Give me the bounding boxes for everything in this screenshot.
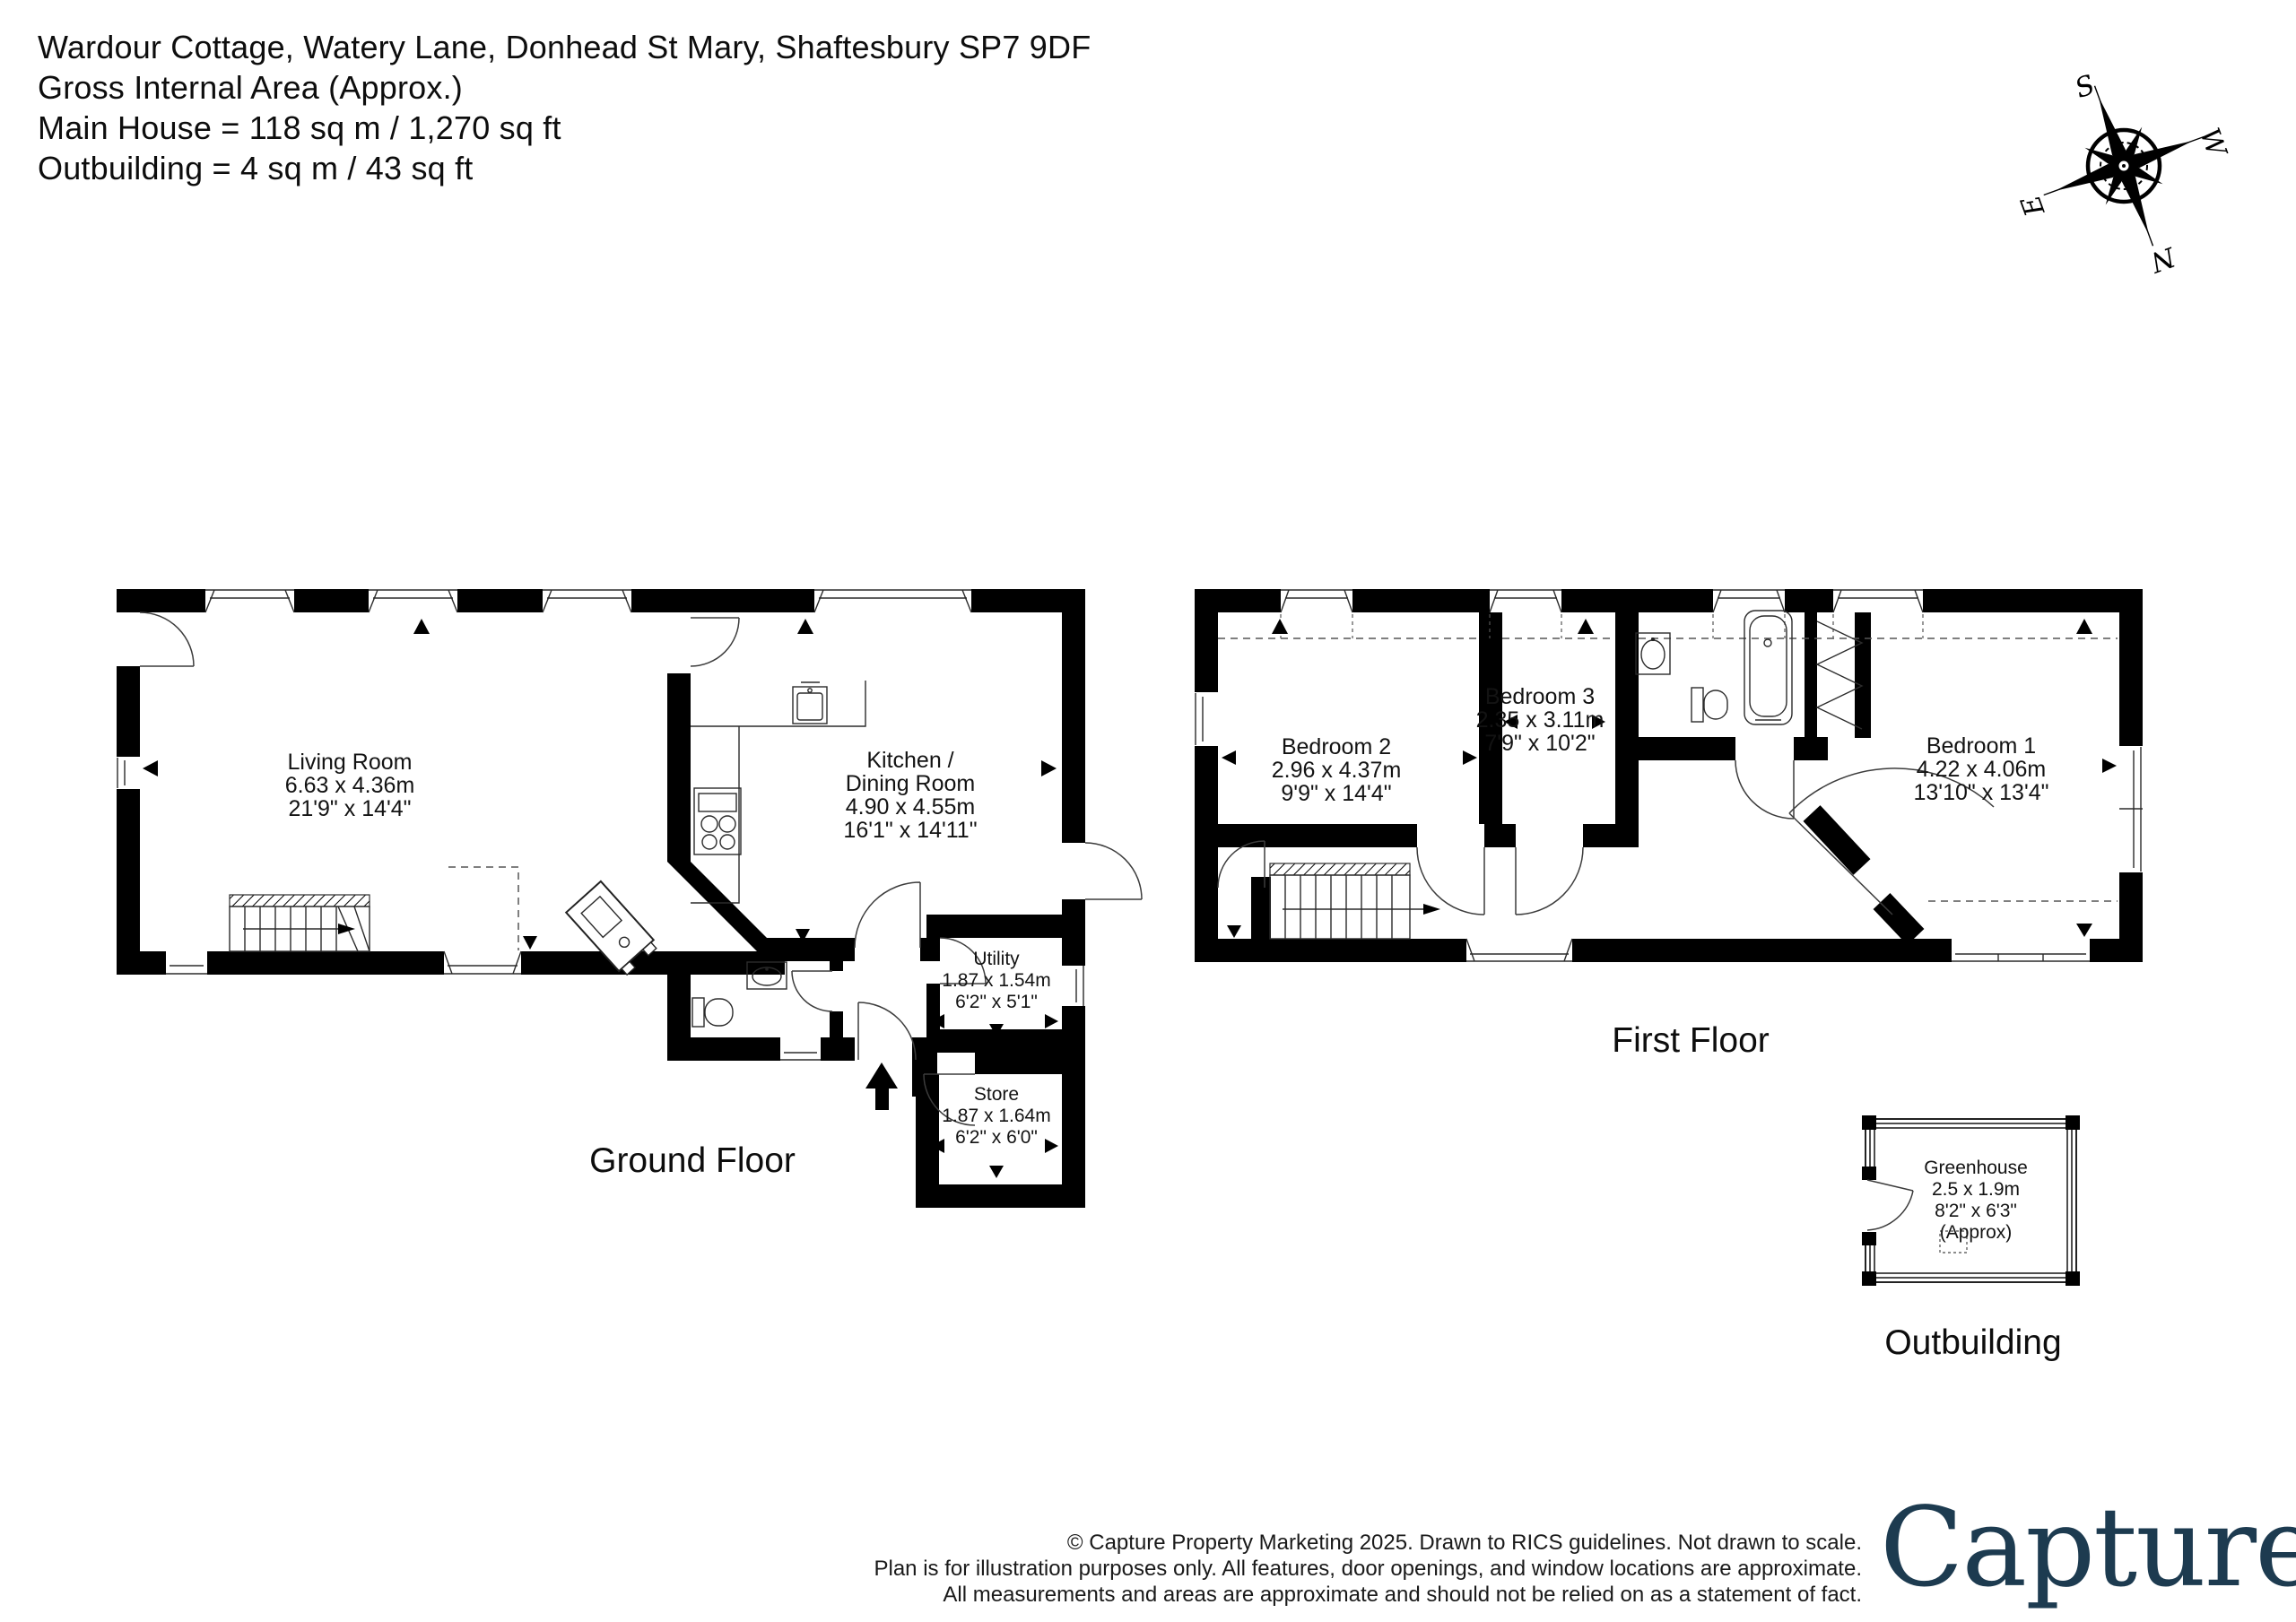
bathroom-sink [1636, 633, 1670, 674]
bedroom1-label: Bedroom 1 4.22 x 4.06m 13'10" x 13'4" [1913, 734, 2048, 804]
capture-logo: Capture. [1880, 1490, 2296, 1605]
compass-east-label: E [2015, 191, 2052, 221]
compass-west-label: W [2193, 124, 2232, 162]
compass-star [2014, 56, 2233, 275]
bathroom-toilet [1692, 688, 1727, 722]
illustration-line: Plan is for illustration purposes only. … [874, 1556, 1862, 1582]
cooker [694, 788, 741, 854]
gross-internal-area-label: Gross Internal Area (Approx.) [38, 67, 1091, 108]
first-staircase [1270, 863, 1440, 939]
entrance-arrow [865, 1063, 898, 1110]
ground-staircase [230, 867, 518, 951]
wc-toilet [692, 998, 733, 1027]
outbuilding-title: Outbuilding [1884, 1323, 2061, 1363]
first-floor-title: First Floor [1612, 1021, 1770, 1061]
property-address: Wardour Cottage, Watery Lane, Donhead St… [38, 27, 1091, 67]
compass-rose: S W N E [2025, 56, 2222, 262]
capture-logo-text: Capture [1880, 1484, 2296, 1611]
greenhouse-label: Greenhouse 2.5 x 1.9m 8'2" x 6'3" (Appro… [1924, 1158, 2028, 1244]
bathtub [1744, 611, 1792, 724]
compass-north-label: N [2144, 240, 2179, 279]
measurements-line: All measurements and areas are approxima… [874, 1582, 1862, 1608]
bedroom3-label: Bedroom 3 2.35 x 3.11m 7'9" x 10'2" [1476, 685, 1605, 755]
store-label: Store 1.87 x 1.64m 6'2" x 6'0" [942, 1084, 1050, 1149]
kitchen-counter [691, 681, 865, 903]
bathroom-fixtures [1636, 611, 1862, 729]
kitchen-dining-label: Kitchen / Dining Room 4.90 x 4.55m 16'1"… [843, 749, 977, 842]
outbuilding-area: Outbuilding = 4 sq m / 43 sq ft [38, 148, 1091, 188]
header: Wardour Cottage, Watery Lane, Donhead St… [38, 27, 1091, 188]
footer-disclaimer: © Capture Property Marketing 2025. Drawn… [874, 1530, 1862, 1608]
utility-label: Utility 1.87 x 1.54m 6'2" x 5'1" [942, 949, 1050, 1013]
living-room-label: Living Room 6.63 x 4.36m 21'9" x 14'4" [285, 750, 415, 820]
main-house-area: Main House = 118 sq m / 1,270 sq ft [38, 108, 1091, 148]
kitchen-sink [793, 682, 827, 724]
copyright-line: © Capture Property Marketing 2025. Drawn… [874, 1530, 1862, 1556]
ground-floor-title: Ground Floor [589, 1141, 796, 1181]
bedroom2-label: Bedroom 2 2.96 x 4.37m 9'9" x 14'4" [1272, 735, 1402, 805]
